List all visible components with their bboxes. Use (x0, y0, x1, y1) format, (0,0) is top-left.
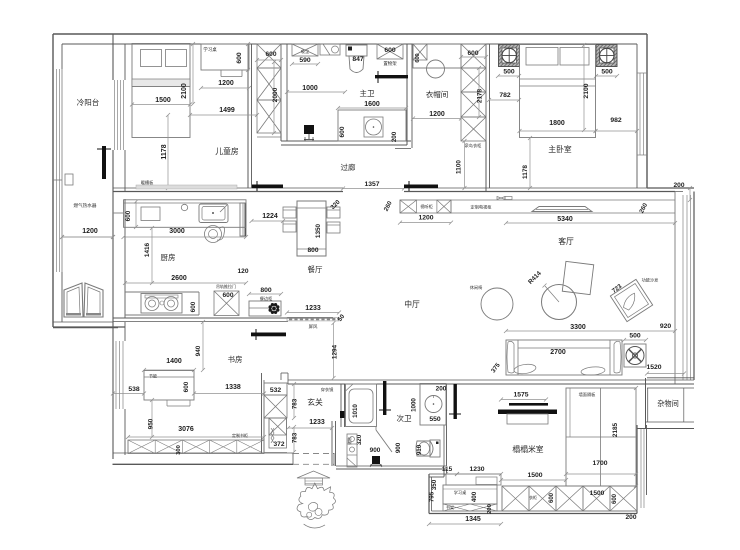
svg-text:532: 532 (270, 387, 282, 394)
svg-text:590: 590 (299, 57, 311, 64)
svg-text:538: 538 (128, 386, 140, 393)
svg-text:500: 500 (629, 333, 641, 340)
svg-text:2100: 2100 (583, 83, 590, 98)
svg-text:穿衣镜: 穿衣镜 (321, 386, 334, 393)
svg-text:500: 500 (601, 69, 613, 76)
svg-text:过廊: 过廊 (341, 162, 356, 172)
svg-text:1500: 1500 (155, 97, 171, 104)
svg-text:982: 982 (610, 117, 622, 124)
svg-text:120: 120 (237, 268, 248, 275)
svg-text:1233: 1233 (305, 305, 321, 312)
svg-text:定制电视柜: 定制电视柜 (471, 204, 492, 211)
svg-text:衣柜: 衣柜 (529, 494, 537, 500)
svg-text:600: 600 (183, 381, 190, 392)
svg-text:定制书柜: 定制书柜 (232, 432, 248, 438)
svg-text:1350: 1350 (315, 223, 322, 238)
svg-text:休闲椅: 休闲椅 (470, 284, 483, 291)
svg-text:1230: 1230 (469, 466, 484, 473)
svg-text:940: 940 (195, 345, 202, 356)
svg-text:3000: 3000 (169, 228, 185, 235)
svg-text:2600: 2600 (171, 275, 187, 282)
svg-text:800: 800 (260, 287, 272, 294)
svg-text:书房: 书房 (228, 354, 243, 364)
svg-text:800: 800 (307, 247, 318, 254)
svg-text:600: 600 (467, 50, 478, 57)
svg-text:节能: 节能 (149, 373, 157, 379)
svg-text:1575: 1575 (513, 392, 528, 399)
svg-text:600: 600 (384, 47, 396, 54)
svg-text:1338: 1338 (225, 384, 241, 391)
svg-text:1600: 1600 (364, 101, 380, 108)
svg-text:795: 795 (429, 491, 436, 502)
svg-text:1200: 1200 (218, 80, 234, 87)
svg-text:1520: 1520 (646, 364, 661, 371)
svg-text:847: 847 (352, 56, 364, 63)
svg-text:372: 372 (273, 441, 284, 448)
svg-text:功能沙发: 功能沙发 (642, 277, 660, 284)
svg-text:暖槽板: 暖槽板 (141, 179, 154, 186)
svg-text:350: 350 (431, 479, 438, 490)
svg-text:600: 600 (339, 126, 346, 137)
svg-text:2700: 2700 (550, 349, 566, 356)
svg-text:600: 600 (415, 53, 421, 62)
svg-text:学习桌: 学习桌 (203, 46, 217, 53)
svg-text:次卫: 次卫 (397, 413, 412, 423)
svg-text:200: 200 (625, 514, 636, 521)
svg-text:600: 600 (236, 52, 243, 64)
svg-text:3076: 3076 (178, 426, 194, 433)
svg-text:1224: 1224 (262, 213, 278, 220)
svg-text:1700: 1700 (592, 460, 607, 467)
svg-text:1500: 1500 (590, 490, 605, 497)
svg-text:主卫: 主卫 (360, 88, 375, 98)
svg-text:杂物间: 杂物间 (657, 399, 679, 408)
svg-text:783: 783 (292, 398, 299, 409)
svg-text:1800: 1800 (549, 120, 565, 127)
svg-text:600: 600 (190, 301, 197, 312)
svg-text:主卧室: 主卧室 (548, 144, 572, 154)
svg-text:1416: 1416 (144, 242, 151, 257)
svg-text:1345: 1345 (465, 516, 481, 523)
svg-text:920: 920 (660, 323, 672, 330)
svg-text:餐厅: 餐厅 (308, 265, 323, 274)
svg-text:学习桌: 学习桌 (454, 489, 467, 496)
svg-text:782: 782 (499, 92, 511, 99)
svg-text:榻榻米室: 榻榻米室 (512, 444, 543, 454)
svg-text:冷阳台: 冷阳台 (77, 97, 100, 107)
svg-text:600: 600 (222, 292, 233, 299)
svg-text:墙面隔板: 墙面隔板 (579, 391, 597, 398)
svg-text:900: 900 (370, 447, 381, 454)
svg-text:300: 300 (176, 445, 182, 455)
svg-text:吊轨推拉门: 吊轨推拉门 (216, 283, 236, 289)
svg-text:910: 910 (416, 444, 423, 455)
svg-text:900: 900 (395, 442, 402, 453)
svg-text:115: 115 (442, 466, 453, 473)
svg-text:玄关: 玄关 (307, 397, 323, 407)
svg-text:视听柜: 视听柜 (420, 203, 433, 210)
svg-text:1000: 1000 (302, 85, 318, 92)
svg-text:200: 200 (673, 182, 684, 189)
svg-text:衣帽间: 衣帽间 (426, 89, 449, 99)
svg-text:厨房: 厨房 (161, 252, 176, 262)
svg-text:燃气热水器: 燃气热水器 (74, 202, 97, 209)
svg-text:置物架: 置物架 (383, 60, 397, 67)
svg-text:中厅: 中厅 (404, 299, 420, 309)
svg-text:3300: 3300 (570, 324, 586, 331)
svg-text:1200: 1200 (418, 215, 433, 222)
svg-text:600: 600 (549, 492, 555, 503)
svg-text:1200: 1200 (82, 228, 98, 235)
svg-text:书架: 书架 (446, 504, 454, 510)
svg-text:1400: 1400 (166, 358, 182, 365)
svg-text:200: 200 (391, 131, 398, 142)
svg-text:600: 600 (265, 51, 276, 58)
svg-text:600: 600 (125, 210, 132, 221)
svg-text:1294: 1294 (332, 344, 339, 359)
svg-text:1200: 1200 (429, 111, 445, 118)
svg-text:200: 200 (436, 386, 447, 393)
svg-text:儿童房: 儿童房 (215, 146, 239, 156)
svg-text:783: 783 (292, 432, 299, 443)
svg-text:1233: 1233 (309, 419, 325, 426)
svg-text:5340: 5340 (557, 216, 573, 223)
svg-text:餐边柜: 餐边柜 (260, 295, 273, 302)
svg-text:600: 600 (612, 493, 618, 504)
svg-text:1000: 1000 (411, 398, 418, 412)
svg-text:1499: 1499 (219, 107, 235, 114)
svg-text:2000: 2000 (272, 87, 279, 102)
svg-text:500: 500 (503, 69, 515, 76)
svg-text:1100: 1100 (456, 160, 463, 174)
svg-text:200: 200 (487, 504, 493, 514)
svg-text:泉岛衣柜: 泉岛衣柜 (465, 142, 482, 149)
svg-text:2185: 2185 (612, 422, 619, 437)
svg-text:1500: 1500 (527, 472, 542, 479)
svg-text:吸尘: 吸尘 (301, 48, 309, 55)
svg-text:1178: 1178 (522, 165, 529, 179)
svg-text:1010: 1010 (352, 404, 359, 418)
svg-text:550: 550 (429, 416, 441, 423)
svg-text:1178: 1178 (161, 144, 168, 159)
svg-text:客厅: 客厅 (558, 236, 574, 246)
svg-text:950: 950 (148, 418, 155, 429)
svg-text:400: 400 (471, 491, 478, 502)
svg-text:1357: 1357 (364, 181, 379, 188)
svg-text:2100: 2100 (181, 83, 188, 99)
svg-text:2178: 2178 (477, 88, 484, 103)
